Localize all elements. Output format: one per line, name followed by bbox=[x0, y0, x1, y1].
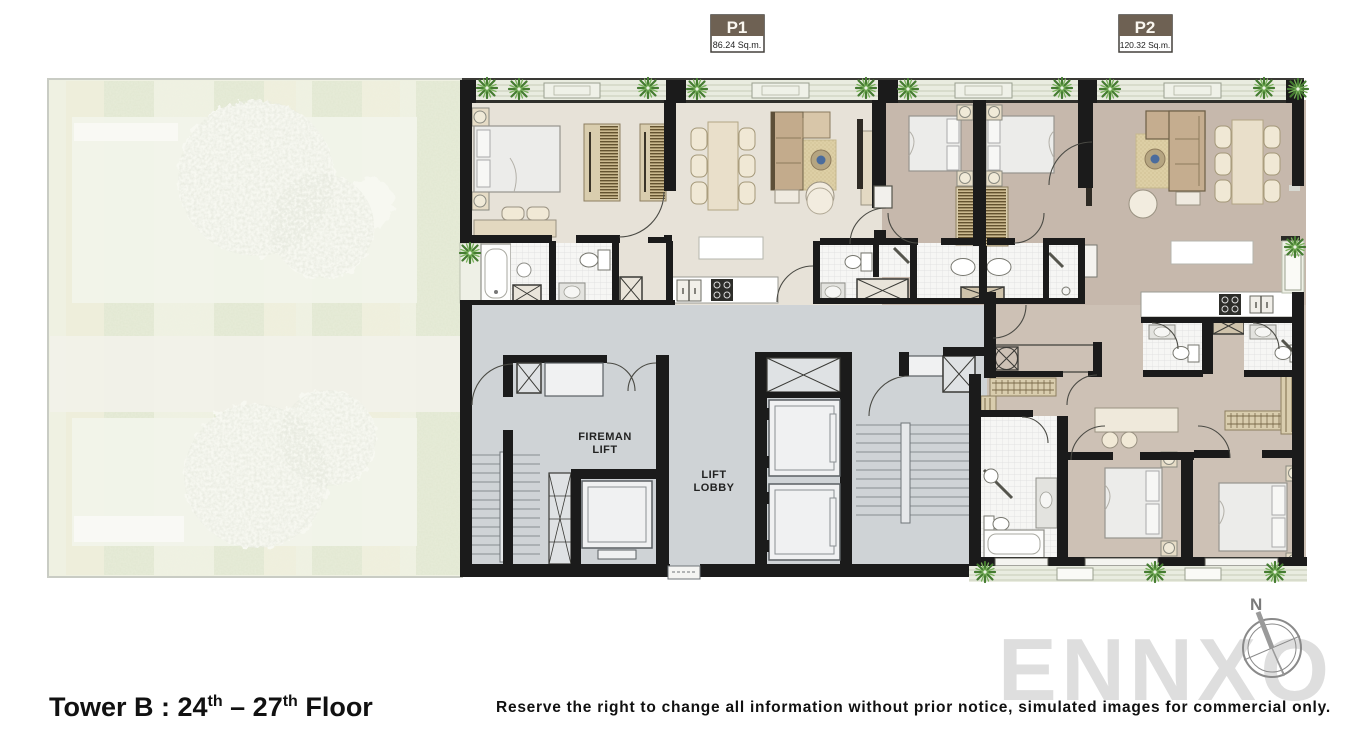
svg-text:LIFT: LIFT bbox=[592, 444, 617, 456]
svg-text:LOBBY: LOBBY bbox=[694, 482, 735, 494]
svg-text:P1: P1 bbox=[727, 18, 748, 37]
svg-text:Reserve the right to change al: Reserve the right to change all informat… bbox=[496, 699, 1331, 716]
svg-text:86.24 Sq.m.: 86.24 Sq.m. bbox=[713, 40, 762, 50]
svg-text:120.32 Sq.m.: 120.32 Sq.m. bbox=[1120, 40, 1171, 50]
svg-text:N: N bbox=[1250, 595, 1262, 614]
svg-text:P2: P2 bbox=[1135, 18, 1156, 37]
svg-text:FIREMAN: FIREMAN bbox=[578, 431, 632, 443]
svg-text:LIFT: LIFT bbox=[701, 469, 726, 481]
